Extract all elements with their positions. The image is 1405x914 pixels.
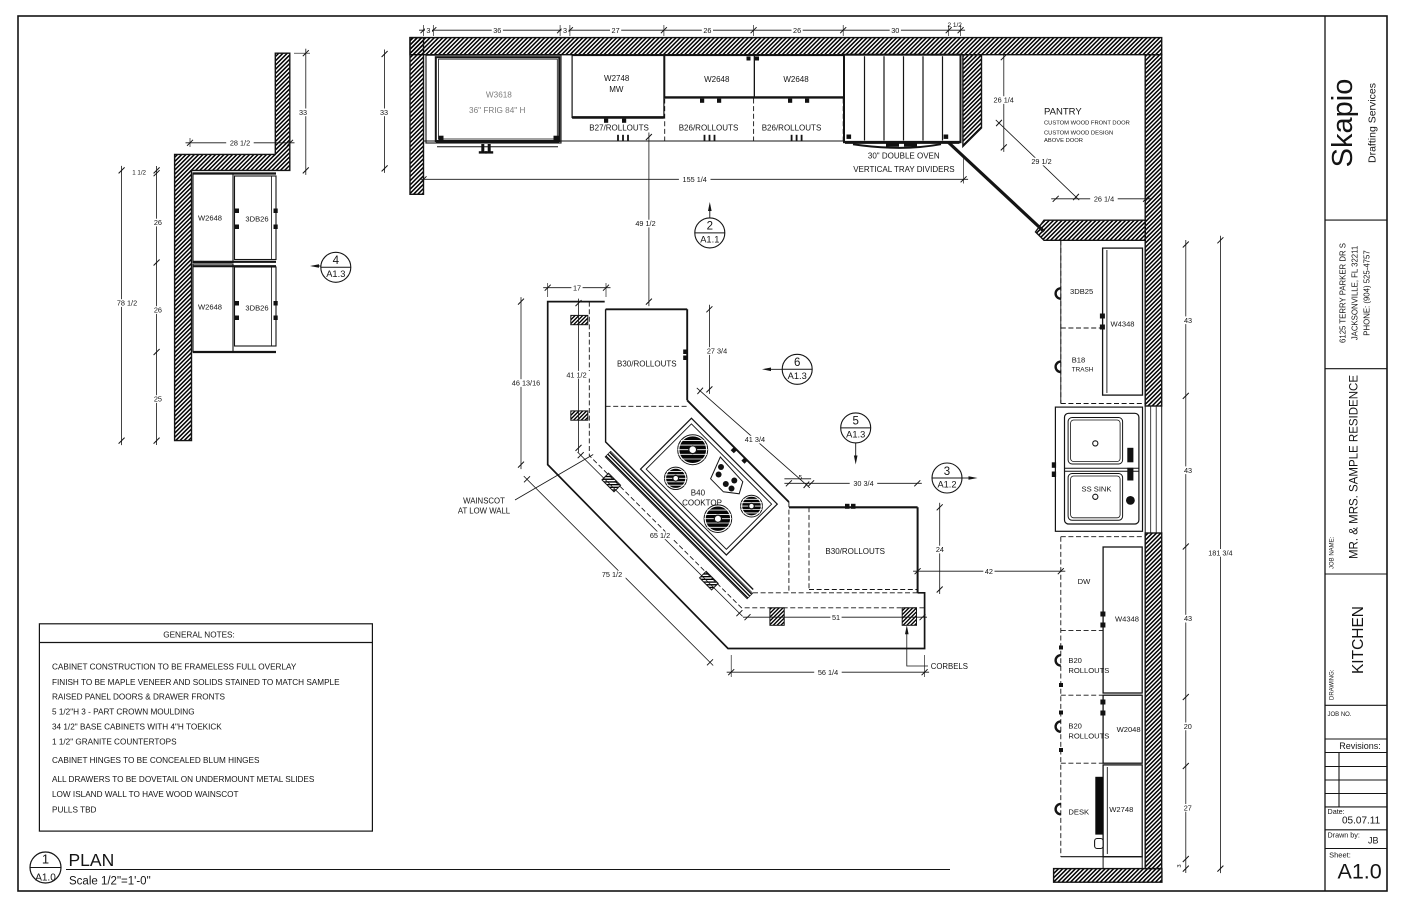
svg-text:4: 4 xyxy=(333,255,340,267)
svg-text:Sheet:: Sheet: xyxy=(1329,851,1351,860)
svg-text:CABINET HINGES TO BE CONCEALED: CABINET HINGES TO BE CONCEALED BLUM HING… xyxy=(52,756,260,765)
svg-text:26 1/4: 26 1/4 xyxy=(1094,194,1114,203)
svg-text:5: 5 xyxy=(852,416,858,428)
svg-text:36: 36 xyxy=(493,26,501,35)
svg-text:3DB25: 3DB25 xyxy=(1070,287,1093,296)
svg-text:3: 3 xyxy=(944,466,950,478)
svg-text:VERTICAL TRAY DIVIDERS: VERTICAL TRAY DIVIDERS xyxy=(853,165,954,174)
svg-text:FINISH TO BE MAPLE VENEER AND: FINISH TO BE MAPLE VENEER AND SOLIDS STA… xyxy=(52,678,340,687)
svg-text:COOKTOP: COOKTOP xyxy=(682,499,722,508)
svg-text:B20: B20 xyxy=(1068,656,1082,665)
svg-text:A1.1: A1.1 xyxy=(700,235,719,245)
svg-text:JACKSONVILLE, FL 32211: JACKSONVILLE, FL 32211 xyxy=(1351,246,1360,340)
svg-text:41 1/2: 41 1/2 xyxy=(566,370,586,379)
svg-text:43: 43 xyxy=(1184,466,1192,475)
svg-text:A1.3: A1.3 xyxy=(788,371,807,381)
svg-text:A1.2: A1.2 xyxy=(937,480,956,490)
svg-text:B30/ROLLOUTS: B30/ROLLOUTS xyxy=(825,547,885,556)
svg-text:42: 42 xyxy=(985,567,993,576)
svg-text:JOB NAME:: JOB NAME: xyxy=(1330,536,1336,569)
svg-text:ABOVE DOOR: ABOVE DOOR xyxy=(1044,138,1083,144)
svg-text:B40: B40 xyxy=(691,489,706,498)
svg-text:27 3/4: 27 3/4 xyxy=(707,347,727,356)
svg-text:PULLS TBD: PULLS TBD xyxy=(52,805,97,814)
svg-text:181 3/4: 181 3/4 xyxy=(1208,548,1232,557)
svg-text:W2748: W2748 xyxy=(1109,805,1133,814)
svg-text:26: 26 xyxy=(793,26,801,35)
svg-text:30" DOUBLE OVEN: 30" DOUBLE OVEN xyxy=(868,152,940,161)
svg-text:5: 5 xyxy=(798,475,802,482)
svg-text:DW: DW xyxy=(1078,577,1091,586)
svg-text:75 1/2: 75 1/2 xyxy=(602,570,622,579)
svg-text:JOB NO.: JOB NO. xyxy=(1328,712,1352,718)
svg-text:30: 30 xyxy=(891,26,899,35)
svg-text:W4348: W4348 xyxy=(1115,615,1139,624)
svg-text:51: 51 xyxy=(832,613,840,622)
svg-text:3DB26: 3DB26 xyxy=(245,215,268,224)
svg-text:RAISED PANEL DOORS & DRAWER FR: RAISED PANEL DOORS & DRAWER FRONTS xyxy=(52,693,226,702)
svg-text:PANTRY: PANTRY xyxy=(1044,106,1082,117)
svg-text:49 1/2: 49 1/2 xyxy=(635,219,655,228)
svg-text:A1.3: A1.3 xyxy=(846,430,865,440)
svg-text:JB: JB xyxy=(1368,836,1379,846)
svg-text:Drawn by:: Drawn by: xyxy=(1328,831,1360,840)
svg-text:PLAN: PLAN xyxy=(69,850,115,870)
svg-text:155 1/4: 155 1/4 xyxy=(683,175,707,184)
svg-text:A1.3: A1.3 xyxy=(326,269,345,279)
svg-text:33: 33 xyxy=(380,108,388,117)
svg-text:W2648: W2648 xyxy=(198,214,222,223)
svg-text:2: 2 xyxy=(707,221,713,233)
svg-text:B18: B18 xyxy=(1072,356,1086,365)
svg-text:LOW ISLAND WALL TO HAVE WOOD W: LOW ISLAND WALL TO HAVE WOOD WAINSCOT xyxy=(52,790,239,799)
svg-text:3: 3 xyxy=(1177,864,1183,867)
svg-text:27: 27 xyxy=(1184,803,1192,812)
svg-text:B26/ROLLOUTS: B26/ROLLOUTS xyxy=(762,124,822,133)
svg-text:B30/ROLLOUTS: B30/ROLLOUTS xyxy=(617,360,677,369)
svg-text:1: 1 xyxy=(42,852,49,867)
svg-text:28 1/2: 28 1/2 xyxy=(230,138,250,147)
svg-text:26: 26 xyxy=(154,306,162,315)
svg-text:25: 25 xyxy=(154,395,162,404)
svg-text:17: 17 xyxy=(573,283,581,292)
svg-text:Skapio: Skapio xyxy=(1327,79,1359,168)
svg-text:DRAWING:: DRAWING: xyxy=(1330,669,1336,700)
svg-text:5 1/2"H 3 - PART CROWN MOULDI: 5 1/2"H 3 - PART CROWN MOULDING xyxy=(52,708,195,717)
svg-text:46 13/16: 46 13/16 xyxy=(512,379,540,388)
svg-text:05.07.11: 05.07.11 xyxy=(1342,816,1381,827)
svg-text:6125 TERRY PARKER DR S: 6125 TERRY PARKER DR S xyxy=(1339,243,1348,343)
svg-text:3DB26: 3DB26 xyxy=(245,304,268,313)
svg-text:Scale 1/2"=1'-0": Scale 1/2"=1'-0" xyxy=(69,876,151,888)
svg-text:1 1/2" GRANITE COUNTERTOPS: 1 1/2" GRANITE COUNTERTOPS xyxy=(52,737,177,746)
svg-text:26 1/4: 26 1/4 xyxy=(994,96,1014,105)
svg-text:65 1/2: 65 1/2 xyxy=(650,531,670,540)
svg-text:W3618: W3618 xyxy=(486,91,512,100)
svg-text:WAINSCOT: WAINSCOT xyxy=(463,497,505,506)
svg-text:MW: MW xyxy=(609,85,624,94)
svg-text:27: 27 xyxy=(612,26,620,35)
svg-text:CORBELS: CORBELS xyxy=(931,662,968,671)
svg-text:B26/ROLLOUTS: B26/ROLLOUTS xyxy=(679,124,739,133)
svg-text:Drafting Services: Drafting Services xyxy=(1367,83,1379,163)
svg-text:W2648: W2648 xyxy=(704,75,730,84)
svg-text:1 1/2: 1 1/2 xyxy=(132,170,146,177)
svg-text:6: 6 xyxy=(794,357,800,369)
svg-text:43: 43 xyxy=(1184,316,1192,325)
svg-text:W2748: W2748 xyxy=(604,74,630,83)
svg-text:34 1/2" BASE CABINETS WITH 4"H: 34 1/2" BASE CABINETS WITH 4"H TOEKICK xyxy=(52,723,222,732)
svg-text:GENERAL NOTES:: GENERAL NOTES: xyxy=(163,631,235,640)
svg-text:29 1/2: 29 1/2 xyxy=(1031,157,1051,166)
svg-text:DESK: DESK xyxy=(1068,808,1089,817)
svg-text:ALL DRAWERS TO BE DOVETAIL ON: ALL DRAWERS TO BE DOVETAIL ON UNDERMOUNT… xyxy=(52,775,315,784)
svg-text:AT LOW WALL: AT LOW WALL xyxy=(458,507,511,516)
svg-text:26: 26 xyxy=(703,26,711,35)
svg-text:3: 3 xyxy=(426,26,430,35)
svg-text:56 1/4: 56 1/4 xyxy=(818,668,838,677)
svg-text:26: 26 xyxy=(154,218,162,227)
svg-text:20: 20 xyxy=(1184,722,1192,731)
svg-text:SS SINK: SS SINK xyxy=(1082,484,1112,493)
svg-text:KITCHEN: KITCHEN xyxy=(1350,606,1367,674)
svg-text:78 1/2: 78 1/2 xyxy=(117,299,137,308)
svg-text:W2048: W2048 xyxy=(1117,725,1141,734)
svg-text:B20: B20 xyxy=(1068,722,1082,731)
svg-text:33: 33 xyxy=(299,108,307,117)
svg-text:TRASH: TRASH xyxy=(1072,367,1094,374)
svg-text:2 1/2: 2 1/2 xyxy=(947,22,962,29)
svg-text:CABINET CONSTRUCTION TO BE FRA: CABINET CONSTRUCTION TO BE FRAMELESS FUL… xyxy=(52,663,297,672)
svg-text:43: 43 xyxy=(1184,614,1192,623)
svg-text:36" FRIG 84" H: 36" FRIG 84" H xyxy=(469,106,525,115)
svg-text:41 3/4: 41 3/4 xyxy=(745,435,765,444)
svg-text:30 3/4: 30 3/4 xyxy=(853,479,873,488)
svg-text:CUSTOM WOOD DESIGN: CUSTOM WOOD DESIGN xyxy=(1044,131,1113,137)
svg-text:24: 24 xyxy=(936,545,944,554)
svg-text:ROLLOUTS: ROLLOUTS xyxy=(1068,732,1109,741)
svg-text:Revisions:: Revisions: xyxy=(1339,741,1381,751)
svg-text:MR. & MRS. SAMPLE RESIDENCE: MR. & MRS. SAMPLE RESIDENCE xyxy=(1349,375,1361,559)
svg-text:W2648: W2648 xyxy=(783,75,809,84)
svg-text:B27/ROLLOUTS: B27/ROLLOUTS xyxy=(589,124,649,133)
svg-text:W4348: W4348 xyxy=(1110,320,1134,329)
svg-text:3: 3 xyxy=(563,26,567,35)
svg-text:CUSTOM WOOD FRONT DOOR: CUSTOM WOOD FRONT DOOR xyxy=(1044,121,1130,127)
svg-text:W2648: W2648 xyxy=(198,303,222,312)
svg-text:A1.0: A1.0 xyxy=(35,873,56,884)
svg-text:PHONE: (904) 525-4757: PHONE: (904) 525-4757 xyxy=(1363,250,1372,335)
svg-text:ROLLOUTS: ROLLOUTS xyxy=(1068,666,1109,675)
svg-text:A1.0: A1.0 xyxy=(1338,860,1382,884)
